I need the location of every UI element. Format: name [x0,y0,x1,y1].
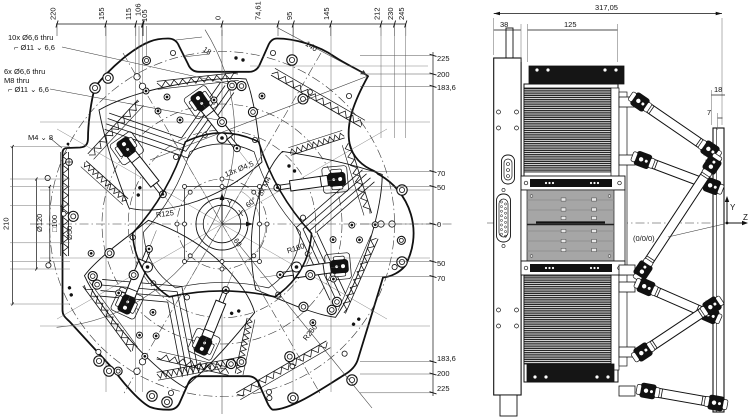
svg-text:70: 70 [437,169,445,178]
svg-text:Ø50: Ø50 [65,226,74,240]
svg-text:105: 105 [140,9,149,22]
svg-text:115: 115 [124,8,133,20]
svg-text:10x Ø6,6 thru: 10x Ø6,6 thru [8,33,53,42]
svg-text:50: 50 [437,259,445,268]
svg-text:210: 210 [2,217,11,230]
svg-text:225: 225 [437,384,450,393]
svg-text:245: 245 [397,7,406,20]
svg-text:183,6: 183,6 [437,83,456,92]
svg-text:74,61: 74,61 [254,1,263,20]
svg-text:□100: □100 [50,215,59,232]
svg-text:M4 ⌄ 8: M4 ⌄ 8 [28,133,53,142]
svg-text:⌐ Ø11 ⌄ 6,6: ⌐ Ø11 ⌄ 6,6 [14,43,55,52]
svg-text:0: 0 [437,220,441,229]
svg-text:Y: Y [227,199,233,208]
svg-text:M8 thru: M8 thru [4,76,29,85]
svg-text:7: 7 [707,108,711,117]
svg-text:155: 155 [97,7,106,20]
svg-text:70: 70 [437,274,445,283]
svg-text:317,05: 317,05 [595,3,618,12]
svg-text:95: 95 [285,12,294,20]
svg-text:225: 225 [437,54,450,63]
svg-text:38: 38 [500,20,508,29]
svg-text:6x Ø6,6 thru: 6x Ø6,6 thru [4,67,45,76]
svg-text:230: 230 [386,7,395,20]
svg-text:200: 200 [437,369,450,378]
svg-text:50: 50 [437,183,445,192]
svg-text:145: 145 [322,7,331,20]
svg-text:Ø120: Ø120 [35,214,44,232]
svg-text:212: 212 [373,7,382,20]
svg-text:18: 18 [714,85,722,94]
svg-text:⌐ Ø11 ⌄ 6,6: ⌐ Ø11 ⌄ 6,6 [8,85,49,94]
svg-text:183,6: 183,6 [437,354,456,363]
svg-text:0: 0 [214,16,223,20]
svg-text:Z: Z [743,213,748,222]
svg-text:220: 220 [49,7,58,20]
svg-text:X: X [238,209,244,218]
svg-text:125: 125 [564,20,577,29]
svg-text:Y: Y [730,203,736,212]
svg-text:200: 200 [437,70,450,79]
svg-text:(0/0/0): (0/0/0) [633,234,655,243]
